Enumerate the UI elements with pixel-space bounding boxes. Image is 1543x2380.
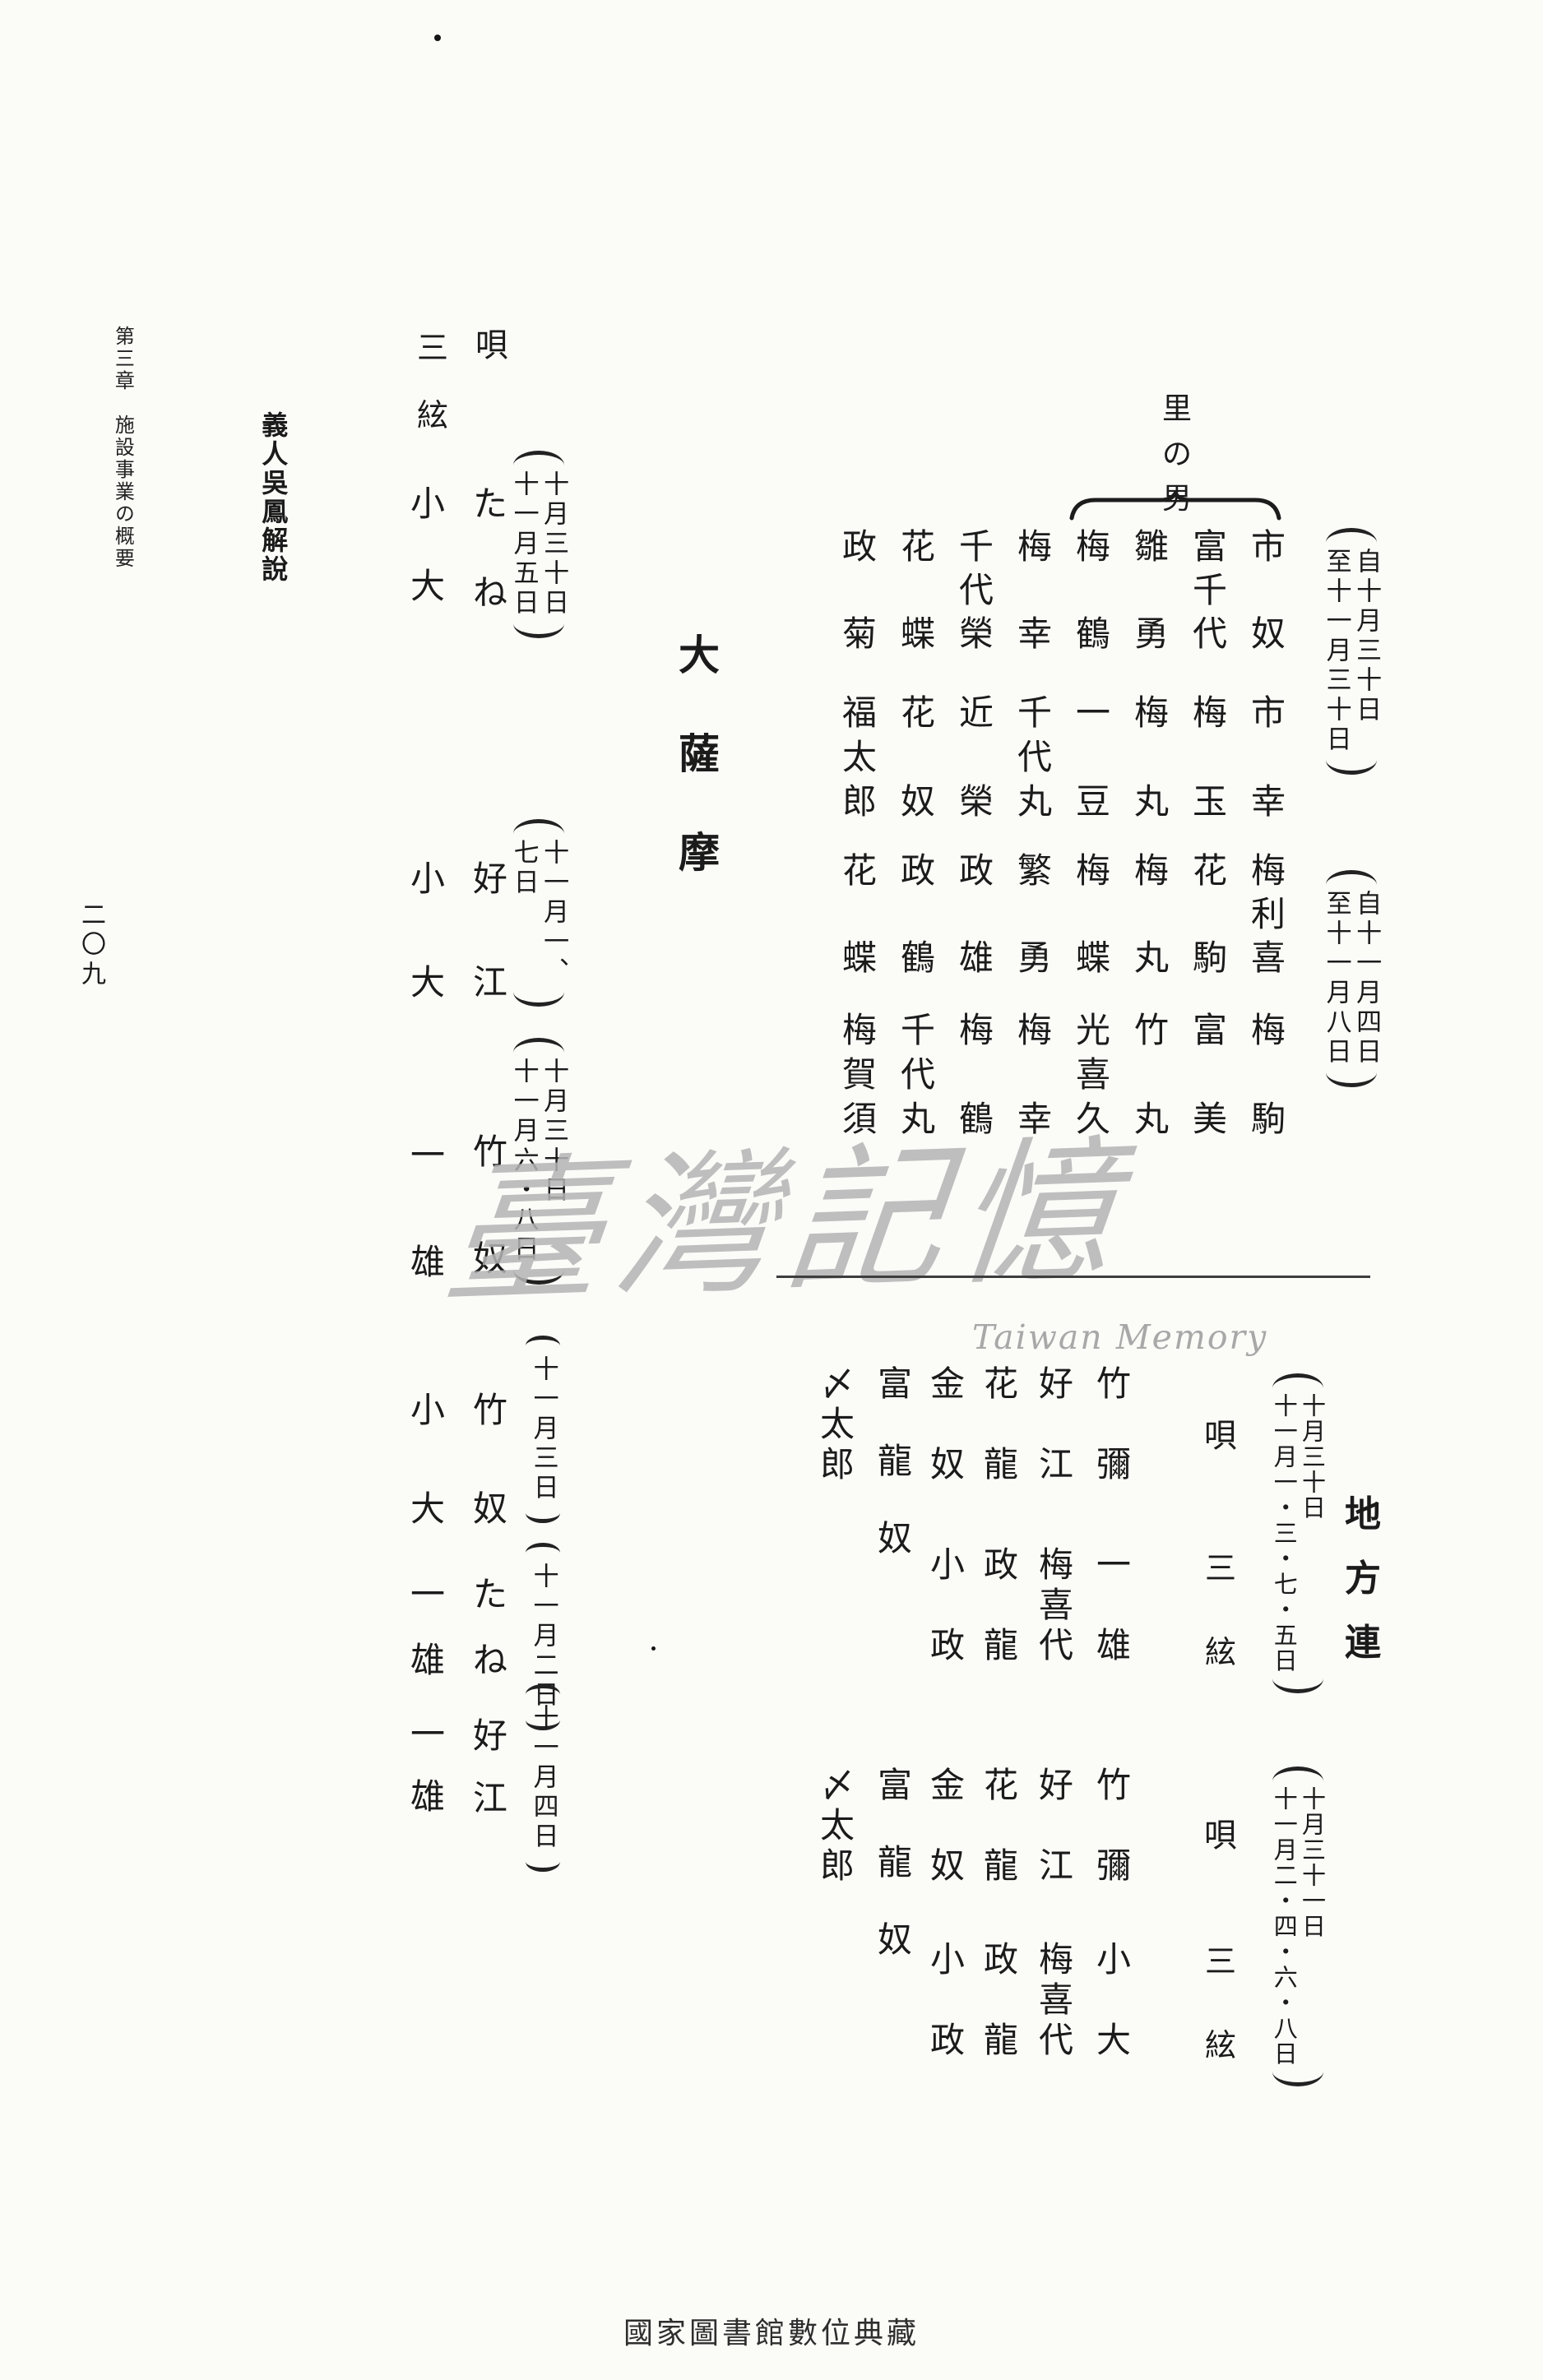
- glyph: 幸: [1017, 617, 1052, 651]
- performer-name: 小政: [924, 1548, 971, 1663]
- glyph: 奴: [1251, 617, 1286, 651]
- glyph: 奴: [473, 1492, 507, 1526]
- glyph: 好: [1039, 1768, 1073, 1803]
- glyph: 代: [1193, 617, 1227, 651]
- glyph: 政: [930, 2023, 965, 2058]
- performer-name: 梅利喜: [1245, 854, 1291, 975]
- glyph: 連: [1345, 1625, 1381, 1661]
- glyph: 大: [410, 965, 445, 1000]
- performer-name: たね: [469, 487, 512, 610]
- performer-name: 小大: [406, 1393, 449, 1526]
- ink-speck: [651, 1646, 656, 1651]
- glyph: 花: [1193, 854, 1227, 888]
- performer-name: 繁勇: [1012, 854, 1058, 975]
- date-range: 十月三十一日 十一月二・四・六・八日: [1270, 1786, 1326, 2067]
- glyph: 龍: [878, 1845, 912, 1880]
- glyph: 一: [410, 1138, 445, 1173]
- performer-name: 花蝶: [895, 530, 941, 651]
- glyph: 三: [1205, 1946, 1236, 1977]
- glyph: 大: [1096, 2023, 1131, 2058]
- glyph: 丸: [1134, 1102, 1169, 1137]
- uta-label: 唄: [1204, 1819, 1237, 1852]
- performer-name: 花蝶: [836, 854, 883, 975]
- date-line: 十一月一・三・七・五日: [1270, 1393, 1298, 1674]
- glyph: 梅: [1017, 530, 1052, 564]
- glyph: 雄: [410, 1245, 445, 1280]
- performer-name: 政龍: [978, 1548, 1024, 1663]
- glyph: 梅: [842, 1013, 877, 1048]
- glyph: 太: [842, 740, 877, 775]
- glyph: 富: [878, 1367, 912, 1401]
- performer-name: 富龍奴: [872, 1768, 918, 1957]
- date-line: 七日: [508, 839, 539, 987]
- performer-name: 金奴: [924, 1768, 971, 1883]
- glyph: 小: [410, 862, 445, 896]
- glyph: 大: [679, 635, 720, 676]
- glyph: 代: [901, 1058, 935, 1092]
- performer-name: 富美: [1187, 1013, 1233, 1137]
- performer-name: 市幸: [1245, 696, 1291, 819]
- footer-text: 國家圖書館數位典藏: [623, 2309, 920, 2352]
- glyph: 雄: [410, 1643, 445, 1678]
- performer-name: 政菊: [836, 530, 883, 651]
- glyph: 賀: [842, 1058, 877, 1092]
- glyph: 菊: [842, 617, 877, 651]
- glyph: 絃: [1205, 1637, 1236, 1668]
- shamisen-label: 三絃: [1201, 1946, 1240, 2061]
- performer-name: 小政: [924, 1942, 971, 2058]
- performer-name: 政鶴: [895, 854, 941, 975]
- glyph: 一: [1096, 1548, 1131, 1582]
- performer-name: 千代榮: [953, 530, 999, 651]
- glyph: 龍: [984, 1628, 1018, 1663]
- glyph: の: [1162, 440, 1192, 470]
- glyph: 薩: [679, 734, 720, 775]
- uta-label: 唄: [475, 329, 508, 362]
- glyph: 富: [878, 1768, 912, 1803]
- performer-name: 梅丸: [1128, 854, 1175, 975]
- glyph: 一: [1076, 696, 1110, 730]
- glyph: 雄: [1096, 1628, 1131, 1663]
- glyph: 政: [959, 854, 994, 888]
- performer-name: 小大: [1091, 1942, 1137, 2058]
- glyph: 彌: [1096, 1849, 1131, 1883]
- glyph: 喜: [1251, 941, 1286, 975]
- glyph: 地: [1345, 1497, 1381, 1533]
- date-line: 十一月五日: [508, 470, 539, 618]
- watermark-latin: Taiwan Memory: [972, 1317, 1267, 1357]
- glyph: 梅: [1017, 1013, 1052, 1048]
- performer-name: 梅喜代: [1033, 1548, 1079, 1663]
- performer-name: 福太郎: [836, 696, 883, 819]
- glyph: 千: [1017, 696, 1052, 730]
- glyph: 奴: [930, 1849, 965, 1883]
- performer-name: 小大: [406, 487, 449, 604]
- performer-name: 小大: [406, 862, 449, 1000]
- performer-name: たね: [469, 1577, 512, 1678]
- performer-name: 一雄: [1091, 1548, 1137, 1663]
- glyph: 駒: [1193, 941, 1227, 975]
- glyph: 〆: [820, 1768, 855, 1803]
- performer-name: 梅蝶: [1070, 854, 1116, 975]
- glyph: 梅: [1076, 854, 1110, 888]
- uta-label: 唄: [1204, 1419, 1237, 1452]
- glyph: 江: [1039, 1849, 1073, 1883]
- glyph: 光: [1076, 1013, 1110, 1048]
- date-range: 自十月三十日 至十一月三十日: [1321, 548, 1381, 755]
- glyph: 梅: [1251, 1013, 1286, 1048]
- glyph: 雛: [1134, 530, 1169, 564]
- glyph: 丸: [1017, 785, 1052, 819]
- glyph: 花: [901, 696, 935, 730]
- glyph: た: [473, 1577, 507, 1612]
- glyph: 利: [1251, 897, 1286, 932]
- glyph: 花: [984, 1768, 1018, 1803]
- glyph: 榮: [959, 617, 994, 651]
- glyph: 雄: [410, 1780, 445, 1814]
- glyph: 大: [410, 1492, 445, 1526]
- glyph: 太: [820, 1407, 855, 1442]
- glyph: 豆: [1076, 785, 1110, 819]
- glyph: 喜: [1076, 1058, 1110, 1092]
- shamisen-label: 三絃: [1201, 1553, 1240, 1668]
- glyph: 梅: [1039, 1942, 1073, 1977]
- glyph: 政: [842, 530, 877, 564]
- performer-name: 竹彌: [1091, 1768, 1137, 1883]
- glyph: 江: [473, 965, 507, 1000]
- glyph: 梅: [1193, 696, 1227, 730]
- performer-name: 一雄: [406, 1577, 449, 1678]
- performer-name: 竹彌: [1091, 1367, 1137, 1482]
- performer-name: 近榮: [953, 696, 999, 819]
- glyph: 郎: [820, 1447, 855, 1482]
- glyph: 榮: [959, 785, 994, 819]
- scanned-document-page: 第三章 施設事業の概要 義人吳鳳解說 二〇九 里の男 自十月三十日 至十一月三十…: [0, 0, 1543, 2380]
- page-number: 二〇九: [77, 901, 104, 990]
- date-line: 十一月二・四・六・八日: [1270, 1786, 1298, 2067]
- glyph: 駒: [1251, 1102, 1286, 1137]
- glyph: 小: [930, 1942, 965, 1977]
- performer-name: 好江: [469, 1719, 512, 1816]
- glyph: 鶴: [1076, 617, 1110, 651]
- glyph: 花: [842, 854, 877, 888]
- glyph: 政: [901, 854, 935, 888]
- glyph: 丸: [1134, 785, 1169, 819]
- glyph: 太: [820, 1808, 855, 1843]
- glyph: 梅: [1039, 1548, 1073, 1582]
- glyph: 絃: [417, 400, 448, 431]
- glyph: 龍: [984, 2023, 1018, 2058]
- performer-name: 梅鶴: [953, 1013, 999, 1137]
- glyph: 蝶: [842, 941, 877, 975]
- glyph: 奴: [901, 785, 935, 819]
- glyph: 花: [901, 530, 935, 564]
- glyph: 彌: [1096, 1447, 1131, 1482]
- glyph: 梅: [1134, 854, 1169, 888]
- glyph: 富: [1193, 530, 1227, 564]
- glyph: 好: [1039, 1367, 1073, 1401]
- performer-name: 梅幸: [1012, 530, 1058, 651]
- glyph: ね: [473, 576, 507, 610]
- performer-name: 花龍: [978, 1768, 1024, 1883]
- glyph: 玉: [1193, 785, 1227, 819]
- glyph: 代: [1039, 2023, 1073, 2058]
- performer-name: 一豆: [1070, 696, 1116, 819]
- ink-speck: [434, 35, 441, 41]
- glyph: 花: [984, 1367, 1018, 1401]
- date-line: 十月三十日: [1298, 1393, 1326, 1674]
- glyph: 勇: [1134, 617, 1169, 651]
- glyph: 三: [417, 332, 448, 363]
- glyph: 大: [410, 569, 445, 604]
- glyph: 里: [1162, 395, 1192, 424]
- date-line: 自十月三十日: [1351, 548, 1382, 755]
- glyph: 小: [410, 1393, 445, 1428]
- glyph: 一: [410, 1577, 445, 1612]
- glyph: 方: [1345, 1561, 1381, 1597]
- performer-name: 市奴: [1245, 530, 1291, 651]
- date-line: 至十一月八日: [1321, 890, 1351, 1067]
- separator-line: [776, 1276, 1370, 1278]
- glyph: 政: [984, 1942, 1018, 1977]
- glyph: 近: [959, 696, 994, 730]
- performer-name: 好江: [469, 862, 512, 1000]
- performer-name: 〆太郎: [814, 1367, 860, 1482]
- shamisen-label: 三絃: [413, 332, 452, 431]
- glyph: 竹: [1096, 1367, 1131, 1401]
- glyph: 千: [1193, 573, 1227, 608]
- date-range: 十月三十日 十一月五日: [508, 470, 568, 618]
- glyph: 千: [959, 530, 994, 564]
- glyph: 喜: [1039, 1588, 1073, 1623]
- performer-name: 〆太郎: [814, 1768, 860, 1883]
- performer-name: 金奴: [924, 1367, 971, 1482]
- date-line: 十一月一、: [539, 839, 569, 987]
- glyph: 富: [1193, 1013, 1227, 1048]
- performer-name: 好江: [1033, 1367, 1079, 1482]
- performer-name: 富龍奴: [872, 1367, 918, 1556]
- performer-name: 梅喜代: [1033, 1942, 1079, 2058]
- glyph: 蝶: [901, 617, 935, 651]
- glyph: 雄: [959, 941, 994, 975]
- date-range: 十月三十日 十一月一・三・七・五日: [1270, 1393, 1326, 1674]
- glyph: 勇: [1017, 941, 1052, 975]
- glyph: 小: [410, 487, 445, 521]
- date-range: 十一月四日: [528, 1704, 558, 1852]
- performer-name: 一雄: [406, 1717, 449, 1814]
- performer-name: 梅玉: [1187, 696, 1233, 819]
- performer-name: 政雄: [953, 854, 999, 975]
- performer-name: 千代丸: [1012, 696, 1058, 819]
- glyph: 小: [930, 1548, 965, 1582]
- performer-name: 花駒: [1187, 854, 1233, 975]
- glyph: 丸: [1134, 941, 1169, 975]
- glyph: 代: [959, 573, 994, 608]
- group-brace: [1069, 492, 1281, 521]
- glyph: 梅: [1251, 854, 1286, 888]
- glyph: 竹: [1134, 1013, 1169, 1048]
- date-line: 十一月四日: [528, 1704, 558, 1852]
- performer-name: 雛勇: [1128, 530, 1175, 651]
- date-range: 十一月三日: [528, 1355, 558, 1503]
- date-line: 至十一月三十日: [1321, 548, 1351, 755]
- glyph: 繁: [1017, 854, 1052, 888]
- performer-name: 竹丸: [1128, 1013, 1175, 1137]
- glyph: 奴: [930, 1447, 965, 1482]
- glyph: 政: [930, 1628, 965, 1663]
- glyph: 喜: [1039, 1983, 1073, 2017]
- glyph: 三: [1205, 1553, 1236, 1584]
- glyph: 絃: [1205, 2030, 1236, 2061]
- performer-name: 光喜久: [1070, 1013, 1116, 1137]
- performer-name: 梅賀須: [836, 1013, 883, 1137]
- glyph: 郎: [842, 785, 877, 819]
- glyph: 金: [930, 1367, 965, 1401]
- glyph: 竹: [473, 1393, 507, 1428]
- date-line: 十月三十日: [539, 470, 569, 618]
- glyph: 代: [1017, 740, 1052, 775]
- glyph: 市: [1251, 696, 1286, 730]
- glyph: 一: [410, 1717, 445, 1752]
- glyph: 鶴: [901, 941, 935, 975]
- glyph: 代: [1039, 1628, 1073, 1663]
- glyph: 龍: [984, 1849, 1018, 1883]
- glyph: 梅: [959, 1013, 994, 1048]
- date-range: 自十一月四日 至十一月八日: [1321, 890, 1381, 1067]
- daisatsuma-title: 大薩摩: [674, 635, 724, 873]
- chihoren-title: 地方連: [1341, 1497, 1385, 1661]
- date-line: 十一月三日: [528, 1355, 558, 1503]
- glyph: 奴: [878, 1521, 912, 1556]
- glyph: 小: [1096, 1942, 1131, 1977]
- date-range: 十一月一、 七日: [508, 839, 568, 987]
- glyph: 蝶: [1076, 941, 1110, 975]
- glyph: 美: [1193, 1102, 1227, 1137]
- glyph: 梅: [1076, 530, 1110, 564]
- performer-name: 梅駒: [1245, 1013, 1291, 1137]
- performer-name: 富千代: [1187, 530, 1233, 651]
- glyph: 好: [473, 1719, 507, 1753]
- performer-name: 竹奴: [469, 1393, 512, 1526]
- performer-name: 梅鶴: [1070, 530, 1116, 651]
- glyph: 江: [1039, 1447, 1073, 1482]
- glyph: 好: [473, 862, 507, 896]
- glyph: 江: [473, 1781, 507, 1816]
- glyph: 〆: [820, 1367, 855, 1401]
- performer-name: 梅丸: [1128, 696, 1175, 819]
- performer-name: 好江: [1033, 1768, 1079, 1883]
- chapter-header: 第三章 施設事業の概要: [112, 326, 133, 570]
- glyph: 福: [842, 696, 877, 730]
- glyph: 梅: [1134, 696, 1169, 730]
- performer-name: 梅幸: [1012, 1013, 1058, 1137]
- glyph: 奴: [878, 1923, 912, 1957]
- performer-name: 政龍: [978, 1942, 1024, 2058]
- glyph: 幸: [1251, 785, 1286, 819]
- glyph: 摩: [679, 832, 720, 873]
- glyph: 政: [984, 1548, 1018, 1582]
- glyph: た: [473, 487, 507, 521]
- performer-name: 一雄: [406, 1138, 449, 1280]
- date-line: 十月三十一日: [1298, 1786, 1326, 2067]
- glyph: 龍: [878, 1444, 912, 1479]
- glyph: 龍: [984, 1447, 1018, 1482]
- glyph: ね: [473, 1643, 507, 1678]
- glyph: 市: [1251, 530, 1286, 564]
- performer-name: 千代丸: [895, 1013, 941, 1137]
- glyph: 金: [930, 1768, 965, 1803]
- glyph: 千: [901, 1013, 935, 1048]
- glyph: 郎: [820, 1849, 855, 1883]
- section-title: 義人吳鳳解說: [258, 411, 287, 584]
- performer-name: 花龍: [978, 1367, 1024, 1482]
- performer-name: 花奴: [895, 696, 941, 819]
- glyph: 竹: [1096, 1768, 1131, 1803]
- date-line: 自十一月四日: [1351, 890, 1382, 1067]
- watermark-script: 臺灣記憶: [438, 1133, 1136, 1313]
